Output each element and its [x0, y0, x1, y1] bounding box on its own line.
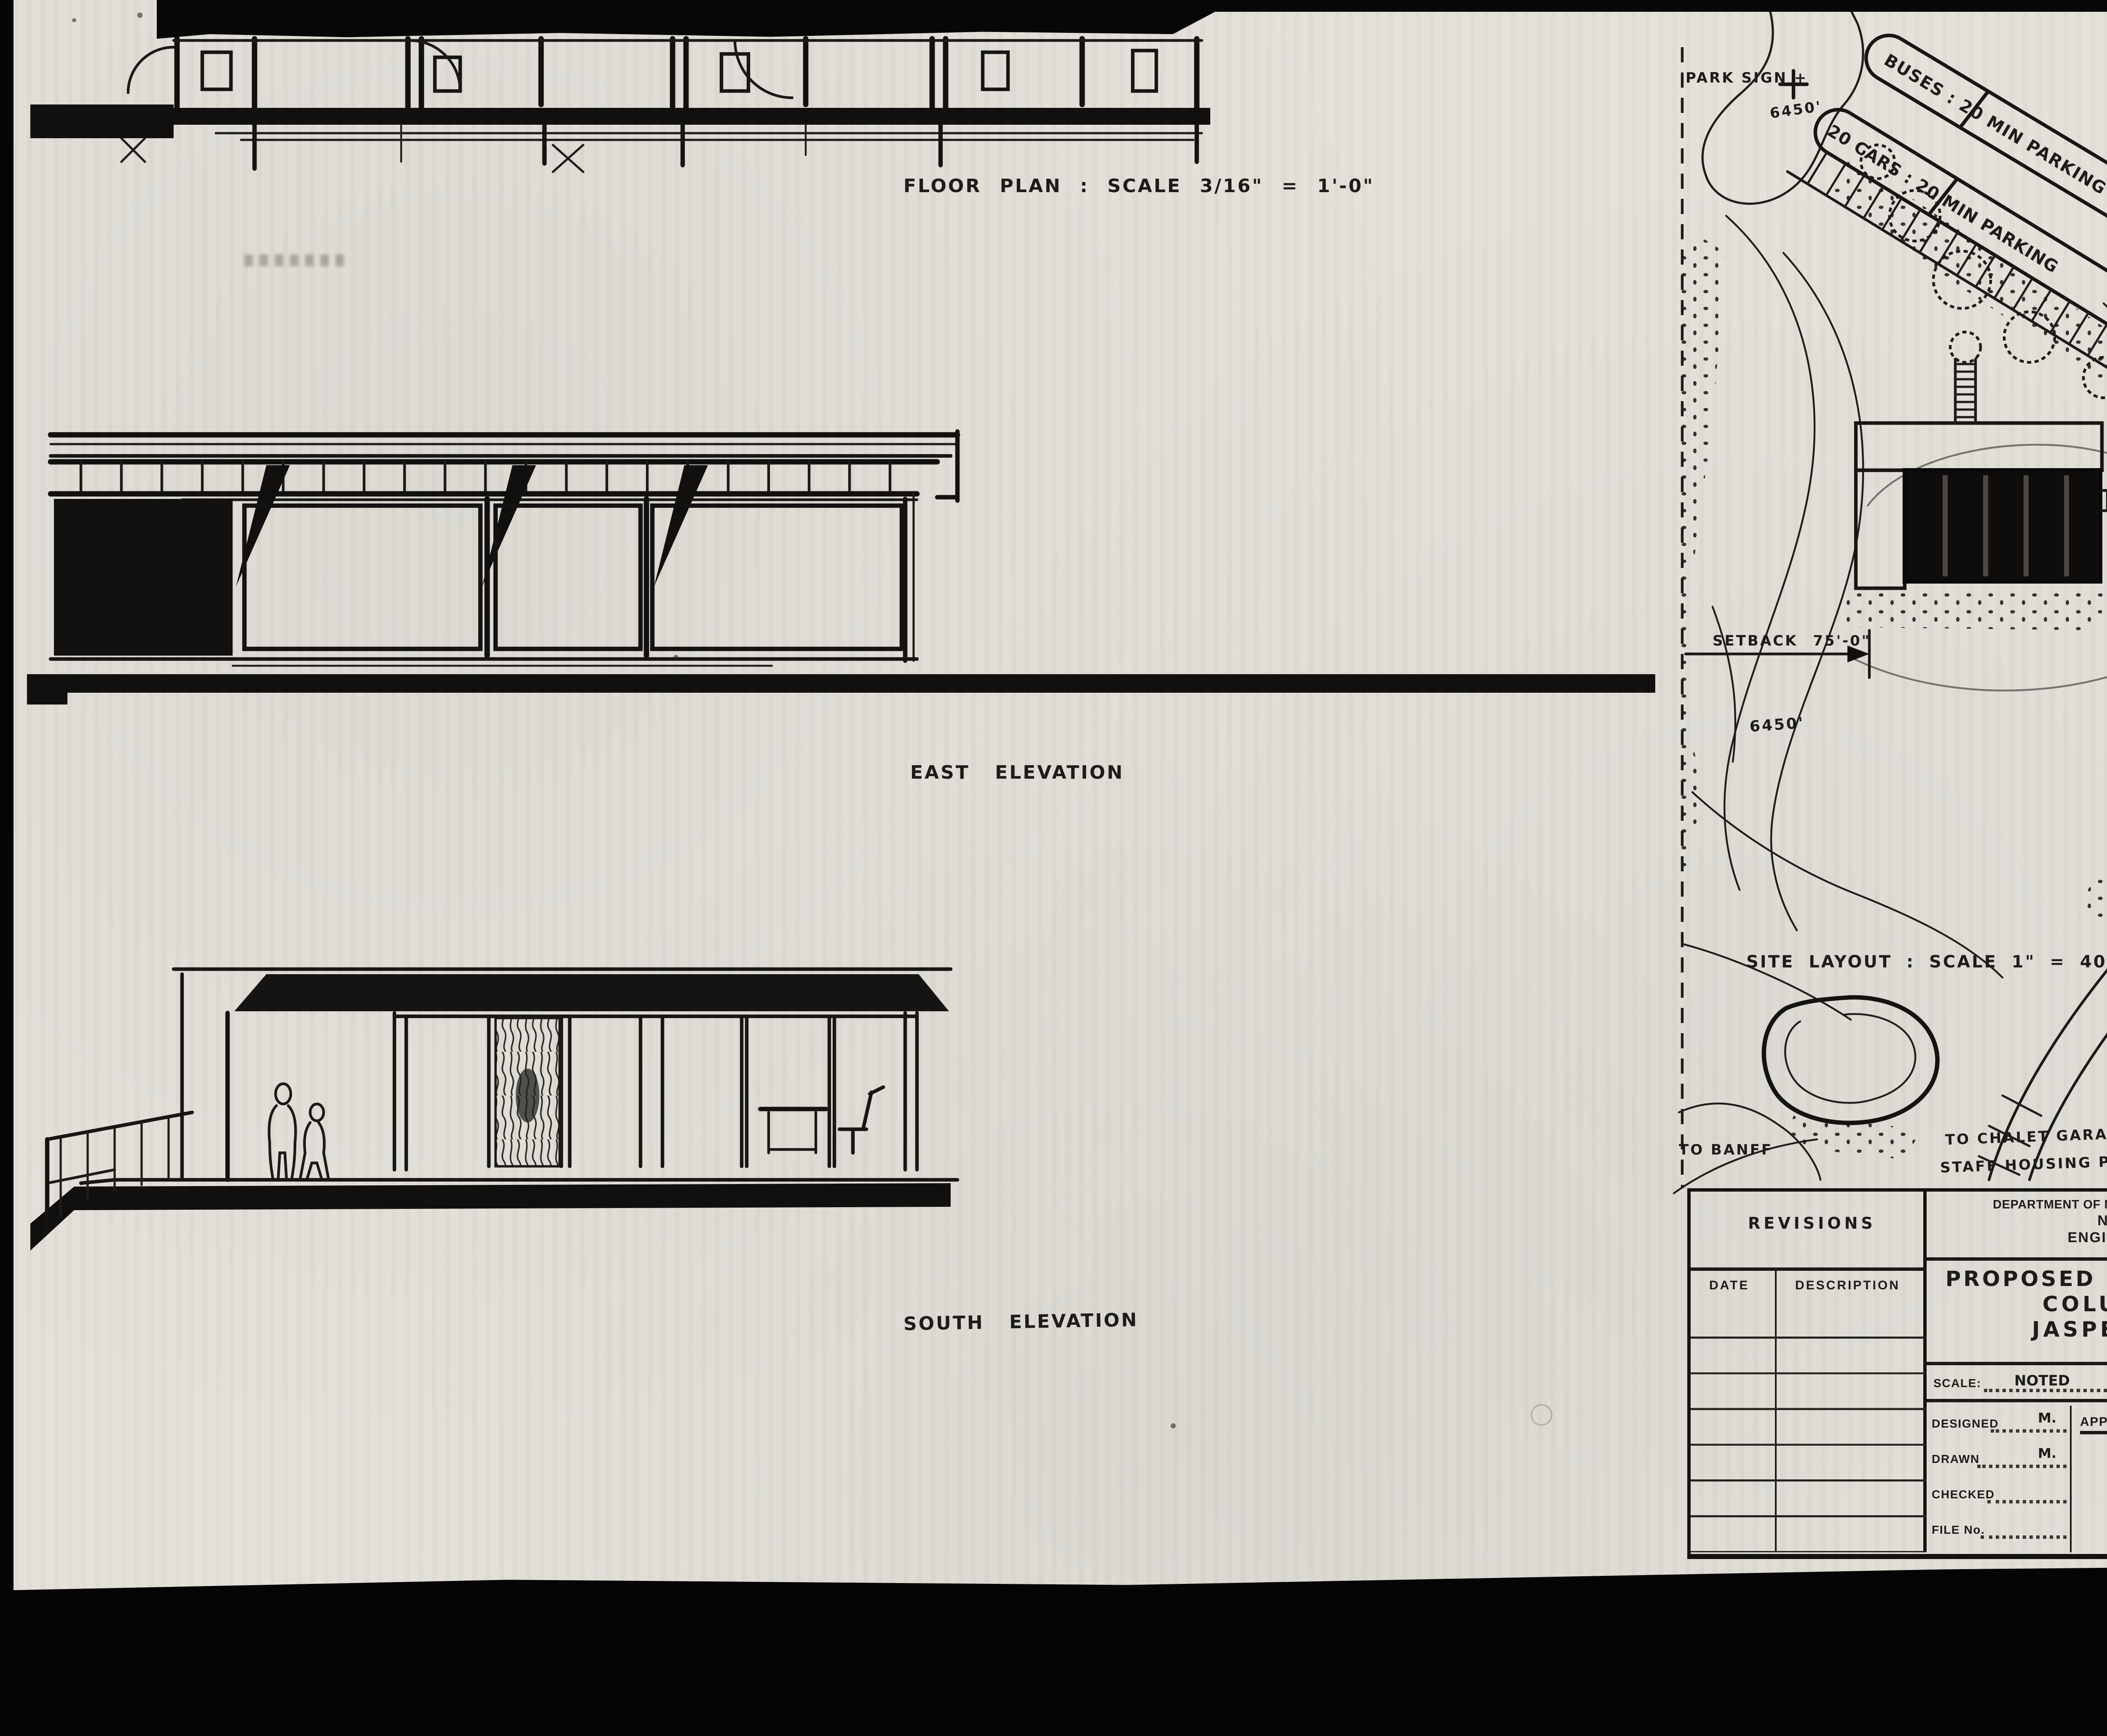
fascia-end-cap: [937, 431, 957, 501]
platform-line: [81, 1180, 957, 1183]
checked-label: CHECKED: [1932, 1490, 1995, 1502]
title-block: REVISIONS DATE DESCRIPTION DEPARTMENT OF…: [1687, 1188, 2107, 1559]
ground-band: [40, 674, 1655, 693]
revisions-col-date: DATE: [1709, 1278, 1750, 1293]
department-line1: DEPARTMENT OF NORTHERN AFFAIRS AND NATIO…: [1927, 1197, 2107, 1212]
title-panel: DEPARTMENT OF NORTHERN AFFAIRS AND NATIO…: [1927, 1192, 2107, 1552]
information-building-footprint: [1851, 359, 2107, 691]
project-title-line1: PROPOSED INFORMATION BUILDING: [1927, 1266, 2107, 1291]
figure-adult: [269, 1084, 296, 1180]
door-swing-arc: [735, 40, 792, 98]
plan-columns: [255, 125, 1197, 169]
floor-plan-caption: FLOOR PLAN : SCALE 3/16" = 1'-0": [903, 175, 1375, 197]
scan-smudge: [1531, 1404, 1552, 1426]
project-title-line2: COLUMBIA ICEFIELDS: [1927, 1291, 2107, 1316]
paper-specks: [72, 13, 1176, 1428]
file-no-label: FILE No.: [1932, 1525, 1985, 1537]
scanned-drawing-sheet: BUSES : 20 MIN PARKING 20 CARS : 20 MIN …: [0, 0, 2107, 1736]
faint-pencil-note: [244, 255, 349, 266]
approved-label: APPROVED: [2080, 1414, 2107, 1434]
revisions-title: REVISIONS: [1748, 1215, 1876, 1234]
credits-column: DESIGNED M. DRAWN M. CHECKED FILE No.: [1927, 1406, 2072, 1552]
plan-fixtures: [202, 51, 1156, 91]
setback-label: SETBACK 75'-0": [1713, 634, 1871, 651]
door-swing-arc: [128, 47, 174, 93]
floor-plan-fragment: [30, 39, 1210, 172]
scale-label: SCALE:: [1933, 1379, 1981, 1390]
building-roof-plan: [1905, 470, 2100, 581]
paper: BUSES : 20 MIN PARKING 20 CARS : 20 MIN …: [13, 0, 2107, 1736]
revisions-empty-rows: [1691, 1303, 1927, 1552]
glazing-mullions: [394, 1013, 917, 1170]
roof-slab: [234, 974, 949, 1011]
east-elevation-caption: EAST ELEVATION: [910, 762, 1124, 784]
roof-bracket: [654, 465, 708, 587]
scan-strip-top-right: [1215, 0, 2107, 12]
kidney-contour: [1764, 997, 1938, 1123]
east-elevation-drawing: [27, 431, 1655, 705]
interior-furniture: [760, 1087, 883, 1153]
plan-thin-lines: [401, 125, 806, 162]
clerestory-mullions: [81, 462, 890, 494]
revisions-col-description: DESCRIPTION: [1795, 1278, 1900, 1293]
site-layout-caption: SITE LAYOUT : SCALE 1" = 40' . CONTOUR I…: [1746, 954, 2107, 972]
plan-wall-poche: [165, 108, 1210, 125]
drawn-label: DRAWN: [1932, 1455, 1980, 1466]
designed-label: DESIGNED: [1932, 1419, 1999, 1431]
roof-bracket: [482, 465, 536, 587]
south-elevation-drawing: [30, 969, 957, 1251]
department-line2: NATIONAL PARKS BRANCH: [1927, 1212, 2107, 1229]
south-elevation-caption: SOUTH ELEVATION: [903, 1309, 1139, 1335]
stipple-banks: [1679, 155, 2107, 1160]
department-line3: ENGINEERING SERVICES DIVISION: [1927, 1229, 2107, 1246]
project-title-line3: JASPER NATIONAL PK.: [1927, 1316, 2107, 1342]
approved-column: APPROVED CHIEF ENGINEER: [2072, 1406, 2107, 1552]
to-banff-label: TO BANFF: [1679, 1143, 1773, 1160]
glazed-bays: [244, 506, 902, 649]
plan-sill-lines: [216, 133, 1202, 140]
end-wall-panel: [54, 499, 233, 656]
contour-lines: [1674, 216, 2107, 1193]
figure-child: [300, 1104, 329, 1180]
side-path: [2102, 490, 2107, 511]
stair-stringer: [30, 1187, 74, 1251]
x-marks: [121, 138, 583, 172]
entry-walk: [1955, 359, 1976, 423]
plan-walls: [177, 39, 1197, 111]
ground-band-south: [74, 1183, 951, 1210]
park-sign-label: PARK SIGN +: [1686, 71, 1808, 88]
plan-left-poche: [30, 104, 174, 138]
revisions-panel: REVISIONS DATE DESCRIPTION: [1691, 1192, 1927, 1552]
